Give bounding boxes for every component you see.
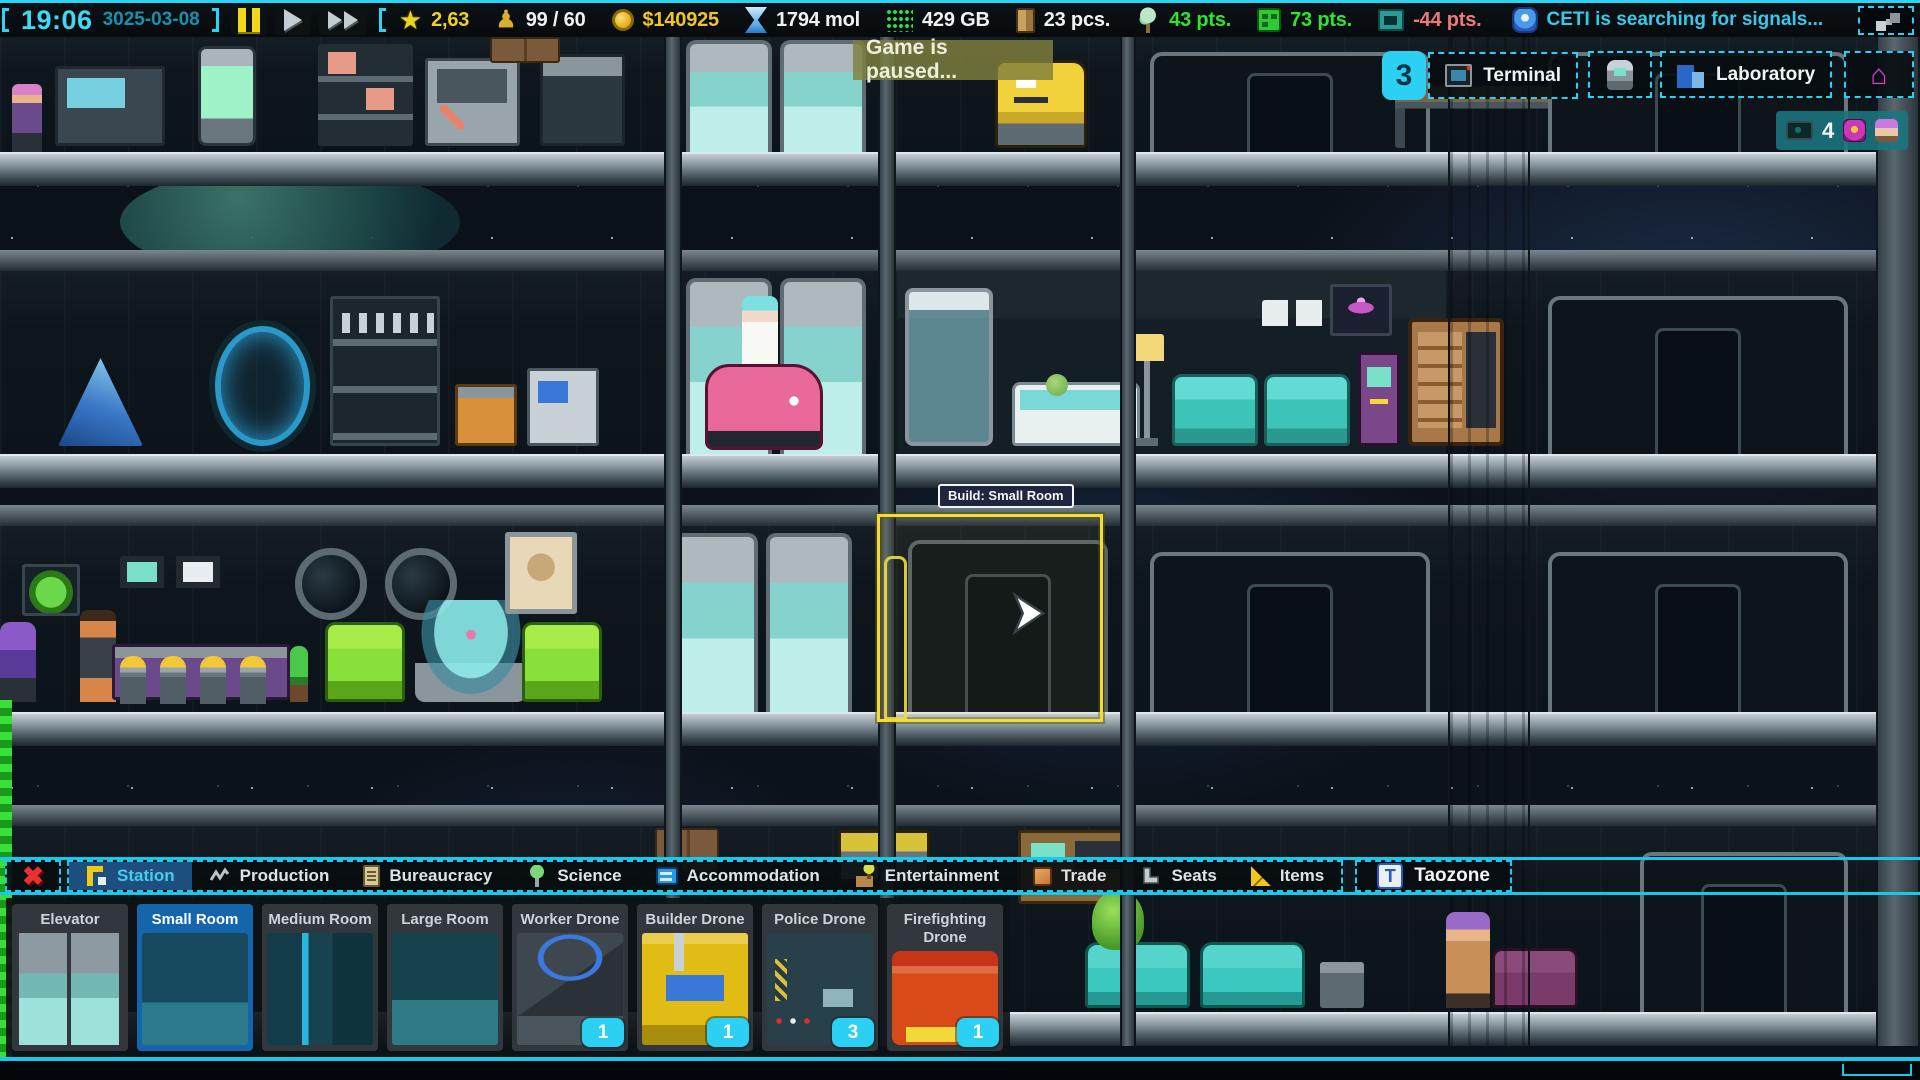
build-menu-tabbar: Station Production Bureaucracy Science A… — [0, 857, 1920, 895]
conveyor-icon — [209, 865, 231, 887]
shower-stall — [905, 288, 993, 446]
resource-nature: 43 pts. — [1123, 3, 1244, 37]
palette-item-worker-drone[interactable]: Worker Drone 1 — [512, 904, 628, 1051]
empty-room — [1548, 552, 1848, 712]
machine-white — [527, 368, 599, 446]
game-time: 19:06 — [21, 5, 93, 36]
pause-icon — [238, 8, 260, 32]
bunk-icon — [656, 867, 678, 885]
sofa-teal — [1172, 374, 1258, 446]
tab-label: Science — [557, 866, 621, 886]
category-tabs: Station Production Bureaucracy Science A… — [67, 860, 1343, 892]
house-icon: ⌂ — [1871, 61, 1888, 89]
wall-frames — [1262, 300, 1324, 328]
ruler-icon — [1251, 866, 1271, 886]
pod-sofa — [1200, 942, 1305, 1008]
tab-label: Items — [1280, 866, 1324, 886]
palette-item-label: Small Room — [142, 909, 248, 933]
mouse-cursor — [1012, 592, 1048, 641]
joystick-icon — [854, 865, 876, 887]
resource-rating: ★ 2,63 — [386, 3, 482, 37]
alien-green — [1092, 890, 1144, 950]
wall-screens — [120, 556, 230, 592]
palette-item-label: Police Drone — [767, 909, 873, 933]
terminal-button[interactable]: Terminal — [1428, 52, 1578, 99]
building-icon — [1257, 8, 1281, 32]
status-text: CETI is searching for signals... — [1547, 9, 1824, 31]
resource-value: 23 pcs. — [1044, 9, 1110, 32]
palette-item-police-drone[interactable]: Police Drone 3 — [762, 904, 878, 1051]
habitat-button[interactable]: ⌂ — [1844, 51, 1914, 98]
robot-character — [0, 622, 36, 702]
close-build-menu-button[interactable] — [5, 860, 61, 892]
tab-bureaucracy[interactable]: Bureaucracy — [346, 862, 509, 890]
hourglass-icon — [745, 7, 767, 33]
ufo-poster — [1330, 284, 1392, 336]
screen-icon — [1378, 9, 1404, 31]
plant — [290, 646, 308, 702]
cargo-icon — [1016, 8, 1035, 33]
alien-portrait — [1843, 119, 1866, 142]
shelf-rack — [330, 296, 440, 446]
clock-group: 19:06 3025-03-08 — [9, 3, 212, 37]
person-portrait — [1875, 119, 1898, 142]
sofa-teal — [1264, 374, 1350, 446]
game-date: 3025-03-08 — [103, 9, 200, 31]
resource-value: $140925 — [643, 9, 719, 32]
drone-icon — [1607, 60, 1633, 90]
build-preview-door — [884, 556, 907, 720]
data-matrix-icon — [886, 9, 913, 32]
crates — [490, 37, 560, 63]
laboratory-label: Laboratory — [1716, 64, 1815, 86]
side-table — [1320, 962, 1364, 1008]
crane-icon — [86, 865, 108, 887]
taozone-label: Taozone — [1414, 865, 1490, 887]
small-room-preview — [142, 933, 248, 1045]
crate-icon — [1033, 867, 1052, 886]
count-badge: 1 — [707, 1018, 749, 1047]
star-icon: ★ — [399, 7, 422, 33]
fast-forward-button[interactable] — [319, 5, 367, 35]
palette-item-label: Builder Drone — [642, 909, 748, 933]
tab-production[interactable]: Production — [192, 862, 347, 890]
bar-stool — [240, 656, 266, 704]
elevator-doors — [672, 533, 852, 712]
resource-value: -44 pts. — [1413, 9, 1481, 32]
resource-goods: 23 pcs. — [1003, 3, 1123, 37]
empty-room — [1150, 552, 1430, 712]
palette-item-label: Worker Drone — [517, 909, 623, 933]
resource-value: 43 pts. — [1169, 9, 1231, 32]
resource-data: 429 GB — [873, 3, 1003, 37]
console — [55, 66, 165, 146]
resource-value: 429 GB — [922, 9, 990, 32]
empty-room — [1548, 296, 1848, 454]
tab-label: Bureaucracy — [389, 866, 492, 886]
camera-icon — [1786, 121, 1813, 140]
resource-value: 1794 mol — [776, 9, 860, 32]
painting — [505, 532, 577, 614]
arcade-machine — [1358, 352, 1400, 446]
coin-icon — [612, 9, 634, 31]
pink-scooter — [705, 364, 823, 450]
game-screen: Game is paused... 3 Terminal Laboratory … — [0, 0, 1920, 1080]
tab-taozone[interactable]: Taozone — [1355, 860, 1512, 892]
palette-item-builder-drone[interactable]: Builder Drone 1 — [637, 904, 753, 1051]
paused-banner: Game is paused... — [853, 40, 1053, 80]
sofa-green — [325, 622, 405, 702]
deck-2 — [0, 250, 1920, 488]
crystal-scanner — [58, 358, 143, 446]
terminal-count: 3 — [1396, 59, 1413, 93]
elevator-preview — [17, 933, 123, 1045]
tab-label: Accommodation — [687, 866, 820, 886]
drone-button[interactable] — [1588, 51, 1652, 98]
build-tooltip-text: Build: Small Room — [948, 488, 1064, 503]
tab-label: Trade — [1061, 866, 1106, 886]
terminal-group: 3 Terminal — [1382, 51, 1578, 100]
character — [12, 84, 42, 152]
playback-controls — [219, 3, 379, 37]
tab-label: Station — [117, 866, 175, 886]
specimen-icon — [526, 865, 548, 887]
palette-item-medium-room[interactable]: Medium Room — [262, 904, 378, 1051]
palette-item-label: Large Room — [392, 909, 498, 933]
frame-bracket — [379, 8, 386, 32]
fast-forward-icon — [328, 11, 358, 29]
bar-stool — [160, 656, 186, 704]
status-message: CETI is searching for signals... — [1499, 3, 1837, 37]
pause-button[interactable] — [231, 5, 267, 35]
bar-stool — [200, 656, 226, 704]
resource-population: ♟ 99 / 60 — [482, 3, 598, 37]
tab-items[interactable]: Items — [1234, 862, 1341, 890]
count-badge: 1 — [582, 1018, 624, 1047]
frame-bracket — [2, 8, 9, 32]
tab-science[interactable]: Science — [509, 862, 638, 890]
resource-money: $140925 — [599, 3, 732, 37]
frame-bracket — [212, 8, 219, 32]
resource-molecules: 1794 mol — [732, 3, 873, 37]
build-preview-outline — [877, 514, 1103, 722]
bar-stool — [120, 656, 146, 704]
palette-item-firefighting-drone[interactable]: Firefighting Drone 1 — [887, 904, 1003, 1051]
large-room-preview — [392, 933, 498, 1045]
terminal-count-badge: 3 — [1382, 51, 1426, 100]
seat-icon — [1140, 865, 1162, 887]
pod-sofa — [1085, 942, 1190, 1008]
count-badge: 3 — [832, 1018, 874, 1047]
portal-rings — [215, 326, 310, 446]
tree-icon — [1136, 7, 1160, 33]
laboratory-button[interactable]: Laboratory — [1660, 51, 1832, 98]
frame-bracket — [1842, 1064, 1912, 1076]
resource-value: 2,63 — [431, 9, 469, 32]
capsule-machine — [198, 46, 256, 146]
palette-item-large-room[interactable]: Large Room — [387, 904, 503, 1051]
laboratory-icon — [1677, 62, 1705, 88]
tab-seats[interactable]: Seats — [1123, 862, 1233, 890]
aquarium-table — [415, 600, 527, 702]
top-bar: 19:06 3025-03-08 ★ 2,63 ♟ 99 / 60 $14092… — [0, 0, 1920, 37]
palette-item-elevator[interactable]: Elevator — [12, 904, 128, 1051]
shelf-crates — [318, 44, 413, 146]
machine — [425, 58, 520, 146]
palette-item-label: Firefighting Drone — [892, 909, 998, 951]
tab-trade[interactable]: Trade — [1016, 862, 1123, 890]
sofa-green — [522, 622, 602, 702]
taozone-icon — [1377, 863, 1403, 889]
tab-label: Seats — [1171, 866, 1216, 886]
resource-value: 99 / 60 — [526, 9, 586, 32]
bather-head — [1046, 374, 1068, 396]
play-icon — [284, 9, 302, 31]
spacer — [1512, 860, 1920, 892]
build-tooltip: Build: Small Room — [938, 484, 1074, 508]
clipboard-icon — [363, 865, 380, 887]
build-palette: Elevator Small Room Medium Room Large Ro… — [6, 898, 1010, 1057]
ceti-robot-icon — [1512, 7, 1538, 33]
terminal-icon — [1445, 64, 1472, 87]
tab-label: Production — [240, 866, 330, 886]
viewers-badge[interactable]: 4 — [1776, 111, 1908, 150]
palette-item-label: Elevator — [17, 909, 123, 933]
terminal-label: Terminal — [1483, 65, 1561, 87]
play-button[interactable] — [275, 5, 311, 35]
elevator-doors — [686, 40, 866, 152]
medium-room-preview — [267, 933, 373, 1045]
character — [80, 610, 116, 702]
resource-value: 73 pts. — [1290, 9, 1352, 32]
viewers-count: 4 — [1822, 118, 1834, 144]
porthole — [295, 548, 367, 620]
resource-housing: 73 pts. — [1244, 3, 1365, 37]
expand-view-button[interactable] — [1858, 6, 1914, 35]
count-badge: 1 — [957, 1018, 999, 1047]
tab-entertainment[interactable]: Entertainment — [837, 862, 1016, 890]
resource-media: -44 pts. — [1365, 3, 1494, 37]
machine-orange — [455, 384, 517, 446]
tab-accommodation[interactable]: Accommodation — [639, 862, 837, 890]
palette-item-small-room[interactable]: Small Room — [137, 904, 253, 1051]
statue-icon: ♟ — [495, 8, 517, 32]
tab-label: Entertainment — [885, 866, 999, 886]
tab-station[interactable]: Station — [69, 862, 192, 890]
palette-item-label: Medium Room — [267, 909, 373, 933]
monster-art — [22, 564, 80, 616]
character-woman — [1446, 912, 1490, 1008]
bottom-frame — [0, 1061, 1920, 1080]
paused-banner-text: Game is paused... — [866, 36, 1040, 84]
console — [540, 54, 625, 146]
